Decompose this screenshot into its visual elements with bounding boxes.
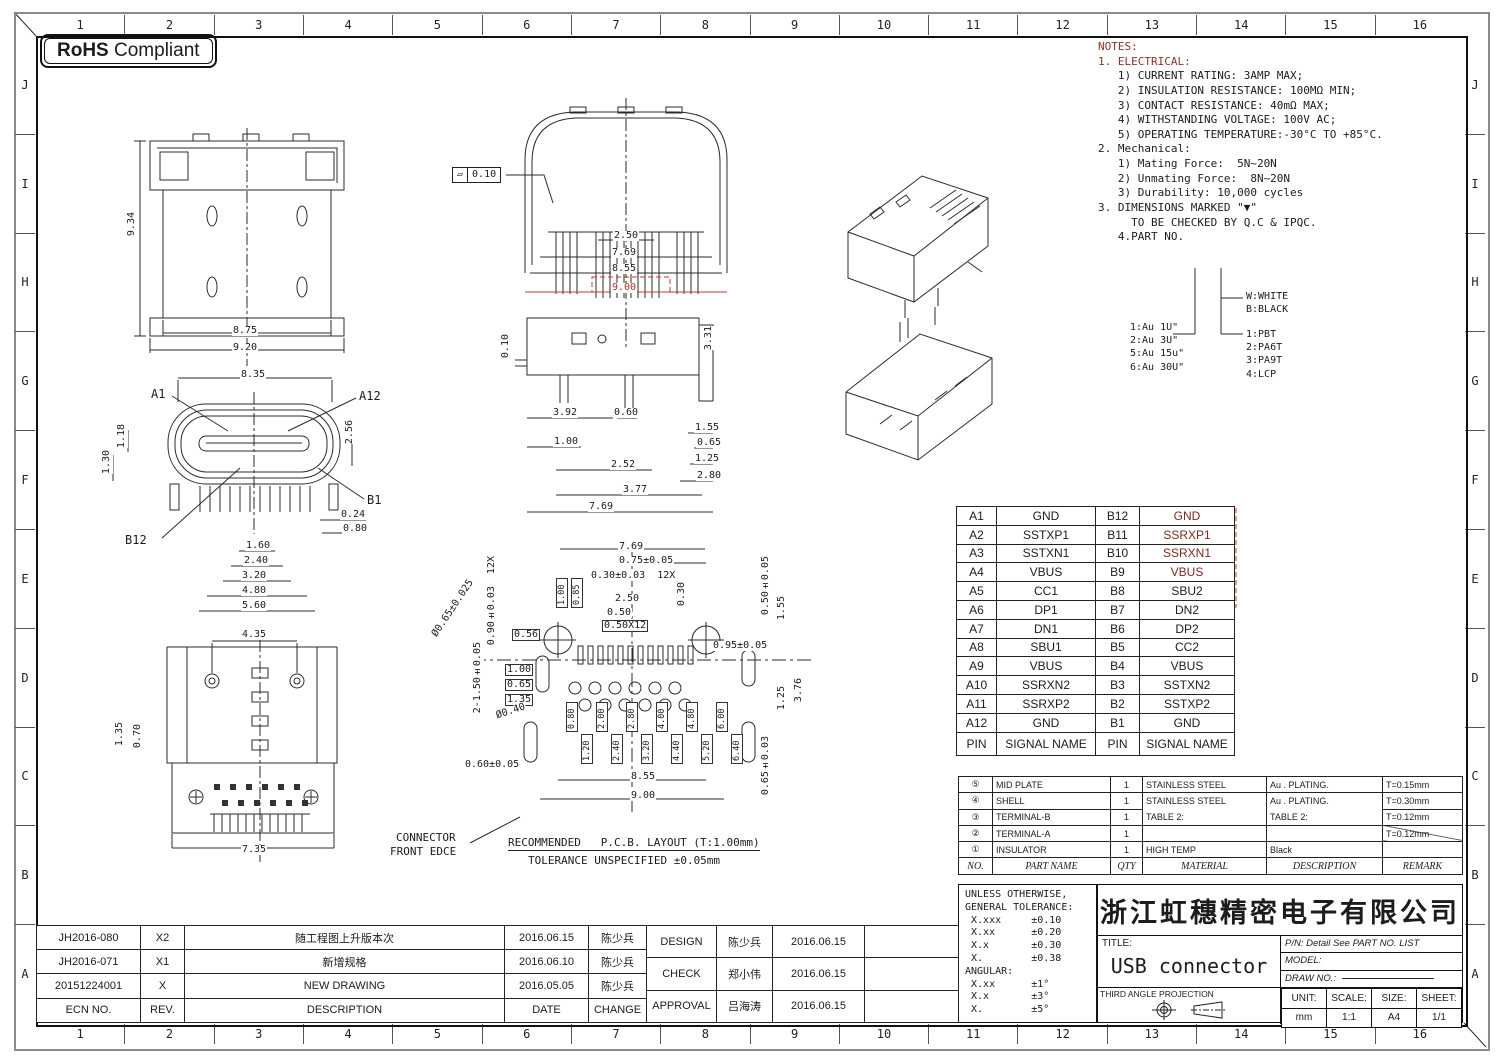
cell: 1	[1111, 809, 1143, 825]
cell: T=0.12mm	[1383, 809, 1463, 825]
cell: SSTXN1	[997, 544, 1096, 563]
tolerance-line: X.xx ±0.20	[959, 927, 1096, 940]
legend-line: W:WHITE	[1246, 290, 1288, 303]
cell: DP1	[997, 600, 1096, 619]
flatness-value: 0.10	[467, 168, 500, 182]
cell: MATERIAL	[1143, 858, 1267, 874]
cell: JH2016-071	[37, 950, 141, 974]
table-row: NO.PART NAMEQTYMATERIALDESCRIPTIONREMARK	[959, 858, 1463, 874]
cell: ①	[959, 842, 993, 858]
cell: 2016.06.15	[773, 958, 865, 990]
cell: 吕海涛	[717, 990, 773, 1022]
table-row: CHECK郑小伟2016.06.15	[647, 958, 959, 990]
cell: 陈少兵	[589, 950, 647, 974]
table-row: DESIGN陈少兵2016.06.15	[647, 926, 959, 958]
dim-label: 7.69	[588, 502, 614, 512]
cell: B8	[1096, 582, 1140, 601]
cell	[1267, 825, 1383, 841]
cell: 郑小伟	[717, 958, 773, 990]
tolerance-block: UNLESS OTHERWISE,GENERAL TOLERANCE: X.xx…	[958, 884, 1097, 1023]
cell: QTY	[1111, 858, 1143, 874]
table-row: ④SHELL1STAINLESS STEELAu . PLATING.T=0.3…	[959, 793, 1463, 809]
table-row: ②TERMINAL-A1T=0.12mm	[959, 825, 1463, 841]
cell: X	[141, 974, 185, 998]
pin-position-label: 6.00	[716, 702, 728, 732]
tolerance-line: GENERAL TOLERANCE:	[959, 902, 1096, 915]
cell: PIN	[1096, 732, 1140, 755]
drawing-sheet: 12345678910111213141516 1234567891011121…	[0, 0, 1502, 1059]
dim-label: 7.69	[611, 248, 637, 258]
cell: 1	[1111, 777, 1143, 793]
table-row: A6DP1B7DN2	[957, 600, 1235, 619]
dim-label: 9.20	[232, 343, 258, 353]
note-line: 2) Unmating Force: 8N~20N	[1098, 172, 1383, 187]
dim-label: 1.18	[116, 424, 128, 448]
table-row: UNIT: SCALE: SIZE: SHEET:	[1282, 989, 1462, 1009]
rohs-badge-text: Compliant	[114, 40, 200, 61]
pin-callout: A1	[150, 388, 166, 400]
table-row: A5CC1B8SBU2	[957, 582, 1235, 601]
pin-position-label: 4.80	[686, 702, 698, 732]
dim-label: 0.65±0.03	[760, 736, 772, 795]
cell: B5	[1096, 638, 1140, 657]
cell: A8	[957, 638, 997, 657]
zone-row-label: H	[1465, 233, 1485, 332]
dim-label: 8.35	[240, 370, 266, 380]
table-row: A8SBU1B5CC2	[957, 638, 1235, 657]
dim-label: 1.30	[101, 450, 113, 474]
pcb-layout-caption: RECOMMENDED P.C.B. LAYOUT (T:1.00mm)	[508, 836, 760, 851]
zone-col-label: 15	[1285, 15, 1374, 35]
title-label: TITLE:	[1102, 938, 1132, 949]
zone-row-label: J	[1465, 36, 1485, 134]
table-row: JH2016-071X1新增规格2016.06.10陈少兵	[37, 950, 647, 974]
title-block: 浙江虹穗精密电子有限公司 TITLE: USB connector P/N: D…	[1097, 884, 1463, 1023]
cell: SSRXP2	[997, 694, 1096, 713]
cell: ⑤	[959, 777, 993, 793]
cell: APPROVAL	[647, 990, 717, 1022]
dim-label: 9.00	[611, 283, 637, 293]
cell	[865, 990, 959, 1022]
zone-col-label: 10	[839, 1024, 928, 1044]
note-line: 4) WITHSTANDING VOLTAGE: 100V AC;	[1098, 113, 1383, 128]
materials-table: ⑤MID PLATE1STAINLESS STEELAu . PLATING.T…	[958, 776, 1463, 875]
cell: SIGNAL NAME	[1140, 732, 1235, 755]
dim-label: 8.55	[611, 264, 637, 274]
cell: VBUS	[1140, 657, 1235, 676]
cell: ③	[959, 809, 993, 825]
draw-no-label: DRAW NO.:	[1281, 970, 1462, 987]
legend-line: 4:LCP	[1246, 368, 1282, 381]
dim-label: 1.55	[776, 596, 788, 620]
cell: B11	[1096, 525, 1140, 544]
table-row: ECN NO.REV.DESCRIPTIONDATECHANGE	[37, 998, 647, 1022]
note-line: 2) INSULATION RESISTANCE: 100MΩ MIN;	[1098, 84, 1383, 99]
cell: DESCRIPTION	[1267, 858, 1383, 874]
zone-row-label: C	[1465, 727, 1485, 826]
dim-label: 1.25	[776, 686, 788, 710]
cell: NO.	[959, 858, 993, 874]
size-value: A4	[1372, 1008, 1417, 1028]
pin-position-label: 1.20	[581, 734, 593, 764]
cell: GND	[997, 507, 1096, 526]
zone-col-label: 5	[392, 1024, 481, 1044]
cell: MID PLATE	[993, 777, 1111, 793]
dim-label: 9.00	[630, 791, 656, 801]
dim-label: 2.40	[243, 556, 269, 566]
cell: INSULATOR	[993, 842, 1111, 858]
cell: 1	[1111, 793, 1143, 809]
dim-label: 4.35	[241, 630, 267, 640]
cell: 2016.06.15	[773, 926, 865, 958]
pin-position-label: 1.00	[556, 578, 568, 608]
pin-position-labels: 0.801.202.002.402.803.204.004.404.805.20…	[566, 702, 743, 764]
cell: B9	[1096, 563, 1140, 582]
cell: ECN NO.	[37, 998, 141, 1022]
tolerance-line: ANGULAR:	[959, 966, 1096, 979]
connector-front-edge-caption: FRONT EDCE	[390, 845, 456, 858]
cell: JH2016-080	[37, 926, 141, 950]
table-row: A2SSTXP1B11SSRXP1	[957, 525, 1235, 544]
zone-col-label: 11	[928, 15, 1017, 35]
pin-position-labels-top: 1.000.85	[556, 578, 583, 608]
cell: TABLE 2:	[1267, 809, 1383, 825]
zone-col-label: 16	[1375, 15, 1464, 35]
dim-label: 3.92	[552, 408, 578, 418]
dim-label: 8.55	[630, 772, 656, 782]
scale-label: SCALE:	[1327, 989, 1372, 1009]
zone-col-label: 13	[1107, 1024, 1196, 1044]
zone-col-label: 1	[36, 1024, 124, 1044]
legend-line: 1:PBT	[1246, 328, 1282, 341]
cell: TERMINAL-A	[993, 825, 1111, 841]
cell: A7	[957, 619, 997, 638]
size-label: SIZE:	[1372, 989, 1417, 1009]
note-line: 1) CURRENT RATING: 3AMP MAX;	[1098, 69, 1383, 84]
cell: TERMINAL-B	[993, 809, 1111, 825]
cell	[1143, 825, 1267, 841]
dim-label: 0.30	[676, 582, 688, 606]
dim-label: 1.55	[694, 423, 720, 433]
zone-col-label: 6	[482, 1024, 571, 1044]
cell: B12	[1096, 507, 1140, 526]
zone-col-label: 12	[1017, 15, 1106, 35]
cell: DATE	[505, 998, 589, 1022]
cell: 2016.06.15	[505, 926, 589, 950]
dim-label: 0.65	[505, 679, 533, 691]
cell: CC1	[997, 582, 1096, 601]
parallelism-symbol: ▱	[453, 168, 467, 182]
pin-position-label: 0.80	[566, 702, 578, 732]
zone-row-label: A	[1465, 924, 1485, 1023]
zone-row-label: F	[15, 430, 35, 529]
dim-label: 0.95±0.05	[712, 641, 768, 651]
dim-label: 2.50	[614, 594, 640, 604]
dim-label: 7.35	[241, 845, 267, 855]
dim-label: 4.80	[241, 586, 267, 596]
tolerance-line: X.x ±0.30	[959, 940, 1096, 953]
dim-label: 1.25	[694, 454, 720, 464]
pin-callout: A12	[358, 390, 382, 402]
cell	[865, 958, 959, 990]
cell: SBU1	[997, 638, 1096, 657]
company-name: 浙江虹穗精密电子有限公司	[1098, 885, 1462, 936]
zone-row-label: A	[15, 924, 35, 1023]
pin-callout: B1	[366, 494, 382, 506]
legend-line: 5:Au 15u"	[1130, 347, 1184, 360]
note-line: 3. DIMENSIONS MARKED "▼"	[1098, 201, 1383, 216]
legend-line: B:BLACK	[1246, 303, 1288, 316]
note-line: 3) CONTACT RESISTANCE: 40mΩ MAX;	[1098, 99, 1383, 114]
zone-row-label: D	[15, 628, 35, 727]
zone-row-label: B	[15, 825, 35, 924]
legend-line: 1:Au 1U"	[1130, 321, 1184, 334]
table-row: A1GNDB12GND	[957, 507, 1235, 526]
zone-row-label: E	[15, 529, 35, 628]
zone-row-label: I	[15, 134, 35, 233]
zone-col-label: 13	[1107, 15, 1196, 35]
cell: 1	[1111, 825, 1143, 841]
tolerance-line: X. ±0.38	[959, 953, 1096, 966]
note-line: 5) OPERATING TEMPERATURE:-30°C TO +85°C.	[1098, 128, 1383, 143]
table-row: ③TERMINAL-B1TABLE 2:TABLE 2:T=0.12mm	[959, 809, 1463, 825]
legend-line: 2:Au 3U"	[1130, 334, 1184, 347]
partno-au-plating-options: 1:Au 1U"2:Au 3U"5:Au 15u"6:Au 30U"	[1130, 321, 1184, 374]
zone-col-label: 1	[36, 15, 124, 35]
cell: 20151224001	[37, 974, 141, 998]
note-line: 1. ELECTRICAL:	[1098, 55, 1383, 70]
cell: CHANGE	[589, 998, 647, 1022]
cell: STAINLESS STEEL	[1143, 793, 1267, 809]
cell: X1	[141, 950, 185, 974]
cell: ②	[959, 825, 993, 841]
table-row: ①INSULATOR1HIGH TEMPBlack	[959, 842, 1463, 858]
cell	[1383, 842, 1463, 858]
dim-label: 8.75	[232, 326, 258, 336]
cell: B6	[1096, 619, 1140, 638]
pin-position-label: 0.85	[571, 578, 583, 608]
zone-ruler-right: JIHGFEDCBA	[1465, 36, 1485, 1023]
cell: 陈少兵	[717, 926, 773, 958]
table-row: JH2016-080X2随工程图上升版本次2016.06.15陈少兵	[37, 926, 647, 950]
zone-row-label: F	[1465, 430, 1485, 529]
cell: A4	[957, 563, 997, 582]
zone-col-label: 9	[750, 15, 839, 35]
table-row: ⑤MID PLATE1STAINLESS STEELAu . PLATING.T…	[959, 777, 1463, 793]
drawing-title: USB connector	[1098, 954, 1280, 978]
note-line: TO BE CHECKED BY Q.C & IPQC.	[1098, 216, 1383, 231]
dim-label: 2.50	[613, 231, 639, 241]
cell: Black	[1267, 842, 1383, 858]
pin-position-label: 6.40	[731, 734, 743, 764]
sheet-meta-table: UNIT: SCALE: SIZE: SHEET: mm 1:1 A4 1/1	[1281, 988, 1462, 1028]
dim-label: 0.70	[132, 724, 144, 748]
dim-label: 0.90±0.03 12X	[486, 556, 498, 645]
cell: B4	[1096, 657, 1140, 676]
pin-callout: B12	[124, 534, 148, 546]
zone-col-label: 2	[124, 15, 213, 35]
cell: DN2	[1140, 600, 1235, 619]
cell: SSRXP1	[1140, 525, 1235, 544]
dim-label: 0.80	[342, 524, 368, 534]
cell: SHELL	[993, 793, 1111, 809]
cell: NEW DRAWING	[185, 974, 505, 998]
cell: DESIGN	[647, 926, 717, 958]
cell: 2016.06.15	[773, 990, 865, 1022]
partno-color-options: W:WHITEB:BLACK	[1246, 290, 1288, 316]
sheet-value: 1/1	[1417, 1008, 1462, 1028]
cell: X2	[141, 926, 185, 950]
cell: VBUS	[1140, 563, 1235, 582]
cell: SBU2	[1140, 582, 1235, 601]
cell: GND	[997, 713, 1096, 732]
cell: A3	[957, 544, 997, 563]
note-line: 2. Mechanical:	[1098, 142, 1383, 157]
table-row: 20151224001XNEW DRAWING2016.05.05陈少兵	[37, 974, 647, 998]
cell: SSTXP1	[997, 525, 1096, 544]
cell: HIGH TEMP	[1143, 842, 1267, 858]
zone-row-label: C	[15, 727, 35, 826]
cell: A1	[957, 507, 997, 526]
pin-position-label: 2.80	[626, 702, 638, 732]
zone-col-label: 3	[214, 1024, 303, 1044]
cell: B2	[1096, 694, 1140, 713]
partno-material-options: 1:PBT2:PA6T3:PA9T4:LCP	[1246, 328, 1282, 381]
cell: DN1	[997, 619, 1096, 638]
dim-label: 1.35	[114, 722, 126, 746]
cell: T=0.30mm	[1383, 793, 1463, 809]
table-row: A12GNDB1GND	[957, 713, 1235, 732]
zone-row-label: I	[1465, 134, 1485, 233]
note-line: NOTES:	[1098, 40, 1383, 55]
dim-label: 0.56	[512, 629, 540, 641]
dim-label: 3.20	[241, 571, 267, 581]
zone-col-label: 4	[303, 1024, 392, 1044]
cell: DP2	[1140, 619, 1235, 638]
dim-label: 0.50	[606, 608, 632, 618]
note-line: 3) Durability: 10,000 cycles	[1098, 186, 1383, 201]
cell: Au . PLATING.	[1267, 793, 1383, 809]
zone-ruler-bottom: 12345678910111213141516	[36, 1024, 1464, 1044]
tolerance-line: X.xxx ±0.10	[959, 915, 1096, 928]
pin-position-label: 2.00	[596, 702, 608, 732]
cell: A10	[957, 676, 997, 695]
rohs-badge: RoHS Compliant	[40, 34, 217, 68]
cell: 2016.05.05	[505, 974, 589, 998]
scale-value: 1:1	[1327, 1008, 1372, 1028]
rohs-badge-bold: RoHS	[57, 40, 109, 61]
cell: A11	[957, 694, 997, 713]
dim-label: 7.69	[618, 542, 644, 552]
cell: T=0.15mm	[1383, 777, 1463, 793]
cell: PART NAME	[993, 858, 1111, 874]
zone-col-label: 9	[750, 1024, 839, 1044]
table-row: A10SSRXN2B3SSTXN2	[957, 676, 1235, 695]
zone-col-label: 4	[303, 15, 392, 35]
dim-label: 2-1.50±0.05	[472, 642, 484, 713]
sheet-label: SHEET:	[1417, 989, 1462, 1009]
table-row: APPROVAL吕海涛2016.06.15	[647, 990, 959, 1022]
legend-line: 3:PA9T	[1246, 354, 1282, 367]
dim-label: 3.77	[622, 485, 648, 495]
zone-col-label: 8	[660, 15, 749, 35]
dim-label: 0.30±0.03 12X	[590, 571, 676, 581]
cell: REV.	[141, 998, 185, 1022]
cell: 新增规格	[185, 950, 505, 974]
pin-position-label: 3.20	[641, 734, 653, 764]
dim-label: 1.00	[553, 437, 579, 447]
dim-label: 0.10	[500, 334, 512, 358]
table-row: PINSIGNAL NAMEPINSIGNAL NAME	[957, 732, 1235, 755]
dim-label: 3.76	[793, 678, 805, 702]
cell: PIN	[957, 732, 997, 755]
cell: A6	[957, 600, 997, 619]
table-row: A9VBUSB4VBUS	[957, 657, 1235, 676]
zone-row-label: E	[1465, 529, 1485, 628]
dim-label: 0.50±0.05	[760, 556, 772, 615]
cell: VBUS	[997, 563, 1096, 582]
cell: REMARK	[1383, 858, 1463, 874]
part-number-note: P/N: Detail See PART NO. LIST	[1281, 936, 1462, 952]
pin-position-label: 2.40	[611, 734, 623, 764]
cell: B7	[1096, 600, 1140, 619]
cell: STAINLESS STEEL	[1143, 777, 1267, 793]
table-row: A3SSTXN1B10SSRXN1	[957, 544, 1235, 563]
zone-col-label: 11	[928, 1024, 1017, 1044]
zone-col-label: 8	[660, 1024, 749, 1044]
pin-position-label: 4.40	[671, 734, 683, 764]
cell: GND	[1140, 713, 1235, 732]
cell: SSRXN1	[1140, 544, 1235, 563]
note-line: 4.PART NO.	[1098, 230, 1383, 245]
dim-label: 0.75±0.05	[618, 556, 674, 566]
flatness-tolerance-frame: ▱ 0.10	[452, 167, 501, 183]
cell: Au . PLATING.	[1267, 777, 1383, 793]
zone-col-label: 2	[124, 1024, 213, 1044]
cell: TABLE 2:	[1143, 809, 1267, 825]
dim-label: 2.52	[610, 460, 636, 470]
notes-block: NOTES:1. ELECTRICAL: 1) CURRENT RATING: …	[1098, 40, 1383, 245]
cell: A2	[957, 525, 997, 544]
third-angle-projection-symbol	[1098, 1000, 1280, 1020]
zone-col-label: 14	[1196, 1024, 1285, 1044]
dim-label: 0.50X12	[602, 620, 648, 632]
revision-table: JH2016-080X2随工程图上升版本次2016.06.15陈少兵JH2016…	[36, 925, 647, 1023]
cell: CC2	[1140, 638, 1235, 657]
dim-label: 1.60	[245, 541, 271, 551]
legend-line: 6:Au 30U"	[1130, 361, 1184, 374]
cell: 陈少兵	[589, 926, 647, 950]
connector-front-edge-caption: CONNECTOR	[396, 831, 456, 844]
pin-assignment-table: A1GNDB12GNDA2SSTXP1B11SSRXP1A3SSTXN1B10S…	[956, 506, 1235, 756]
table-row: A4VBUSB9VBUS	[957, 563, 1235, 582]
zone-row-label: H	[15, 233, 35, 332]
pcb-tolerance-caption: TOLERANCE UNSPECIFIED ±0.05mm	[528, 854, 720, 867]
cell: B10	[1096, 544, 1140, 563]
unit-value: mm	[1282, 1008, 1327, 1028]
tolerance-line: X. ±5°	[959, 1004, 1096, 1017]
cell	[865, 926, 959, 958]
cell: VBUS	[997, 657, 1096, 676]
dim-label: 2.56	[344, 420, 356, 444]
cell: SSTXN2	[1140, 676, 1235, 695]
cell: B3	[1096, 676, 1140, 695]
zone-col-label: 6	[482, 15, 571, 35]
zone-row-label: G	[1465, 331, 1485, 430]
zone-col-label: 12	[1017, 1024, 1106, 1044]
title-cell: TITLE: USB connector	[1098, 936, 1281, 987]
dim-label: 0.65	[696, 438, 722, 448]
